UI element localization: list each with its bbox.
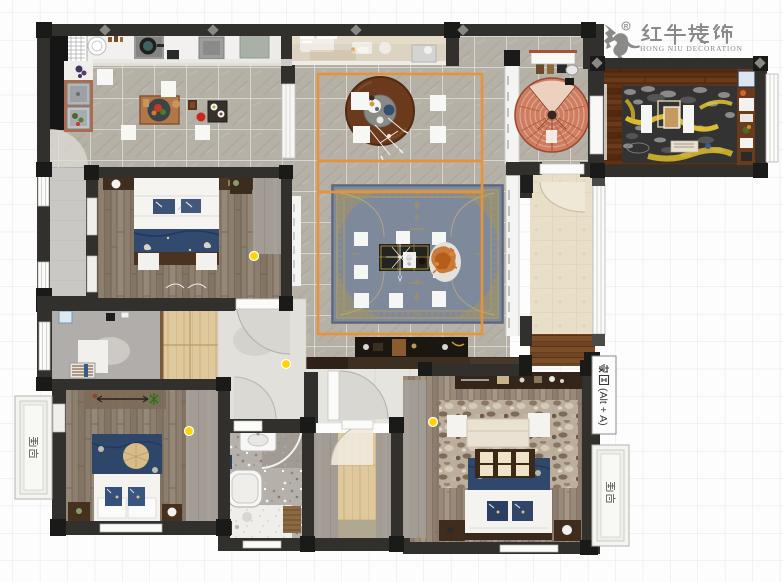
svg-text:(Alt + A): (Alt + A) [597,388,609,426]
svg-text:R: R [624,25,629,31]
svg-text:HONG NIU DECORATION: HONG NIU DECORATION [640,44,743,53]
